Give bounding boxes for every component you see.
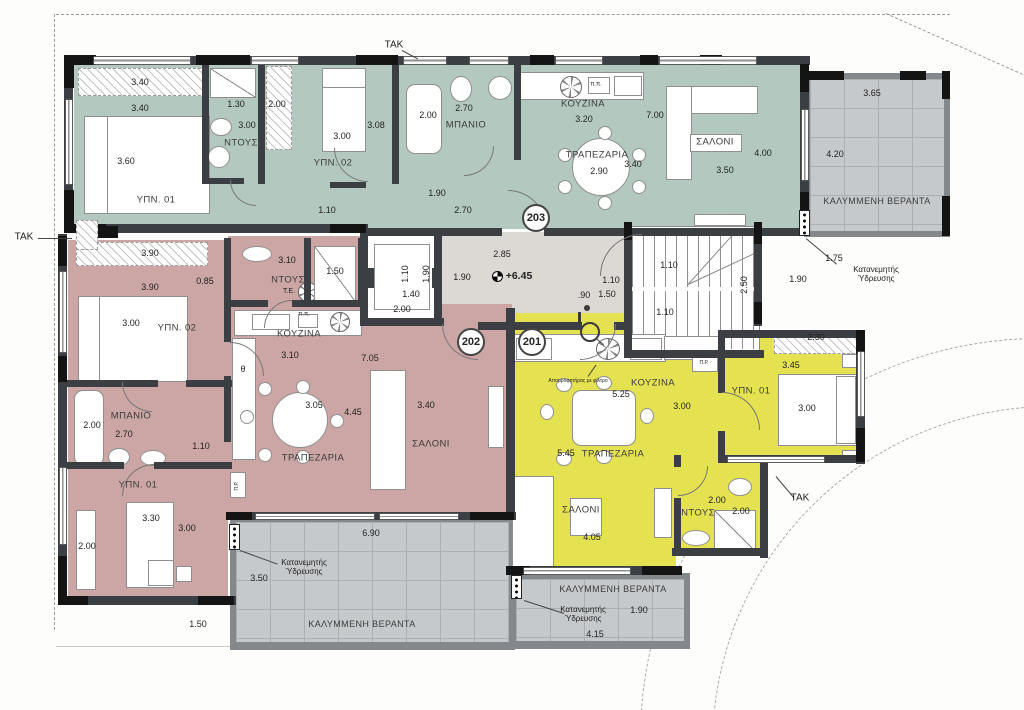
wall-pier xyxy=(196,55,250,65)
dimension-label: 3.30 xyxy=(142,513,160,523)
wall-segment xyxy=(672,548,768,556)
window xyxy=(404,57,446,64)
dimension-label: 3.60 xyxy=(117,156,135,166)
wall-pier xyxy=(64,190,74,224)
cooktop-fan xyxy=(330,312,350,332)
dimension-label: 1.90 xyxy=(421,265,431,283)
dimension-label: 1.50 xyxy=(326,266,344,276)
window xyxy=(660,57,756,64)
wall-pier xyxy=(356,55,398,65)
dimension-label: 3.40 xyxy=(417,400,435,410)
dimension-label: 1.50 xyxy=(189,619,207,629)
dimension-label: θ xyxy=(240,364,245,374)
dimension-label: 3.10 xyxy=(281,350,299,360)
window xyxy=(66,100,72,184)
room-label: ΣΑΛΟΝΙ xyxy=(696,138,734,149)
dimension-label: 2.00 xyxy=(708,495,726,505)
wall-segment xyxy=(674,498,681,556)
dimension-label: 3.00 xyxy=(122,318,140,328)
chair xyxy=(640,408,654,424)
wall-pier xyxy=(640,55,658,65)
wall-segment xyxy=(202,62,209,184)
sofa xyxy=(370,370,406,490)
room-label: ΤΡΑΠΕΖΑΡΙΑ xyxy=(566,151,628,162)
level-marker: +6.45 xyxy=(506,270,533,282)
wall-segment xyxy=(760,458,768,558)
wall-pier xyxy=(856,428,865,462)
dimension-label: 7.05 xyxy=(361,353,379,363)
dimension-label: 6.90 xyxy=(362,528,380,538)
room-label: ΜΠΑΝΙΟ xyxy=(446,121,486,132)
dimension-label: 1.90 xyxy=(428,188,446,198)
pillow xyxy=(78,296,100,382)
room-label: ΣΑΛΟΝΙ xyxy=(412,440,450,451)
room-label: ΝΤΟΥΣ xyxy=(681,509,715,520)
wall-segment xyxy=(258,62,265,184)
dimension-label: 3.40 xyxy=(131,77,149,87)
wall-pier xyxy=(330,224,366,233)
chair xyxy=(240,410,254,424)
dimension-label: 2.90 xyxy=(590,166,608,176)
wall-segment xyxy=(224,238,231,342)
window xyxy=(524,568,630,574)
wall-segment xyxy=(364,228,502,236)
tv-unit xyxy=(694,214,746,226)
dimension-label: 1.10 xyxy=(192,441,210,451)
window xyxy=(94,57,190,64)
dimension-label: 2.70 xyxy=(454,205,472,215)
dimension-label: 3.40 xyxy=(131,103,149,113)
wall-pier xyxy=(754,302,762,324)
dimension-label: 3.20 xyxy=(575,114,593,124)
tak-label-right: ΤΑΚ xyxy=(791,492,810,504)
dimension-label: 0.85 xyxy=(196,276,214,286)
dimension-label: 2.30 xyxy=(807,332,825,342)
chair xyxy=(258,448,272,462)
dimension-label: 2.50 xyxy=(739,276,749,294)
chair xyxy=(632,180,646,194)
water-distributor xyxy=(799,210,810,236)
dimension-label: 3.08 xyxy=(367,120,385,130)
tak-marker xyxy=(76,220,98,250)
wall-segment xyxy=(304,238,311,304)
window xyxy=(802,110,808,180)
dimension-label: 1.50 xyxy=(598,289,616,299)
chair xyxy=(258,382,272,396)
floor-plan-canvas: 203 202 201 ΤΑΚΤΑΚΤΑΚ3.403.401.302.003.0… xyxy=(0,0,1024,710)
veranda-label: ΚΑΛΥΜΜΕΝΗ ΒΕΡΑΝΤΑ xyxy=(308,619,415,629)
dimension-label: 3.10 xyxy=(278,255,296,265)
chair xyxy=(540,404,554,420)
pillow xyxy=(322,68,366,88)
pillow xyxy=(84,116,108,214)
wall-pier xyxy=(64,62,74,88)
tv-unit xyxy=(654,488,672,538)
level-marker-symbol xyxy=(492,271,503,282)
wall-segment xyxy=(330,182,366,188)
pillow xyxy=(836,376,856,444)
tv-unit xyxy=(488,386,504,448)
dimension-label: 1.10 xyxy=(656,307,674,317)
wall-segment xyxy=(392,62,399,184)
sidewalk-line xyxy=(56,646,232,647)
dimension-label: 3.00 xyxy=(178,523,196,533)
dimension-label: 1.10 xyxy=(400,265,410,283)
room-label: ΚΟΥΖΙΝΑ xyxy=(277,330,321,341)
wall-pier xyxy=(530,55,554,65)
window xyxy=(858,352,864,416)
wall-segment xyxy=(434,230,442,326)
tak-label-left: ΤΑΚ xyxy=(15,231,34,243)
dimension-label: 2.70 xyxy=(455,103,473,113)
chair xyxy=(598,196,612,210)
window xyxy=(470,57,508,64)
property-line-corner xyxy=(886,13,1024,79)
dimension-label: 4.15 xyxy=(586,629,604,639)
dimension-label: 4.05 xyxy=(583,532,601,542)
wall-pier xyxy=(856,330,865,354)
dimension-label: 1.10 xyxy=(602,275,620,285)
room-label: ΚΟΥΖΙΝΑ xyxy=(561,100,605,111)
dimension-label: 2.85 xyxy=(493,249,511,259)
room-label: ΥΠΝ. 02 xyxy=(158,324,197,335)
dimension-label: 3.50 xyxy=(716,165,734,175)
wall-segment xyxy=(362,318,444,326)
dimension-label: 3.00 xyxy=(673,401,691,411)
chair xyxy=(330,414,344,428)
dimension-label: 3.90 xyxy=(141,248,159,258)
dimension-label: 1.10 xyxy=(660,260,678,270)
wall-segment xyxy=(718,330,865,338)
water-distributor-note: Κατανεμητής Ύδρευσης xyxy=(560,605,606,623)
wall-pier xyxy=(470,512,514,520)
dimension-label: π.π. xyxy=(590,82,602,89)
water-distributor xyxy=(229,524,240,550)
window xyxy=(256,514,374,519)
room-label: ΥΠΝ. 01 xyxy=(137,196,176,207)
chair xyxy=(558,180,572,194)
window xyxy=(556,57,602,64)
water-distributor-note: Κατανεμητής Ύδρευσης xyxy=(281,558,327,576)
dimension-label: 1.90 xyxy=(630,605,648,615)
wall-segment xyxy=(514,62,521,160)
wall-segment xyxy=(506,308,515,516)
dimension-label: 3.65 xyxy=(863,88,881,98)
wall-pier xyxy=(942,71,950,99)
wall-segment xyxy=(186,380,232,387)
dimension-label: 1.40 xyxy=(402,289,420,299)
wall-pier xyxy=(800,64,809,92)
wall-pier xyxy=(942,196,950,236)
wall-pier xyxy=(754,222,762,244)
chair xyxy=(296,380,310,394)
kitchen-sink xyxy=(614,76,642,96)
dimension-label: 3.90 xyxy=(141,282,159,292)
wall-pier xyxy=(58,556,67,598)
chair xyxy=(598,126,612,140)
dimension-label: 1.90 xyxy=(453,272,471,282)
washbasin xyxy=(242,246,272,262)
wall-pier xyxy=(58,356,67,382)
dimension-label: 2.00 xyxy=(83,420,101,430)
dimension-label: π.π. xyxy=(298,312,310,319)
wall-pier xyxy=(806,71,844,80)
toilet xyxy=(450,76,472,102)
window xyxy=(380,514,458,519)
wall-pier xyxy=(198,596,234,605)
window xyxy=(728,457,824,462)
window xyxy=(60,272,66,352)
water-distributor xyxy=(511,575,522,599)
wall-segment xyxy=(58,462,124,469)
wall-pier xyxy=(58,236,67,266)
dimension-label: 1.30 xyxy=(227,99,245,109)
sofa xyxy=(512,476,554,570)
dimension-label: 2.00 xyxy=(732,506,750,516)
wall-segment xyxy=(292,300,366,307)
dimension-label: 2.00 xyxy=(268,99,286,109)
dimension-label: 3.05 xyxy=(305,400,323,410)
room-label: ΝΤΟΥΣ xyxy=(224,139,258,150)
room-label: ΤΡΑΠΕΖΑΡΙΑ xyxy=(282,454,344,465)
dimension-label: 3.40 xyxy=(624,159,642,169)
cooktop-fan xyxy=(560,76,582,98)
dimension-label: 3.00 xyxy=(238,120,256,130)
wall-pier xyxy=(642,566,682,575)
nightstand xyxy=(176,566,192,582)
dimension-label: 2.00 xyxy=(419,110,437,120)
room-label: ΥΠΝ. 02 xyxy=(314,159,353,170)
room-label: ΤΡΑΠΕΖΑΡΙΑ xyxy=(582,450,644,461)
wall-pier xyxy=(226,512,252,520)
shower-tray xyxy=(714,510,756,552)
sofa xyxy=(666,86,692,180)
toilet xyxy=(210,118,232,136)
dimension-label: Π.Ρ. xyxy=(235,481,241,490)
property-line-left xyxy=(54,14,55,630)
apartment-number-202: 202 xyxy=(457,328,485,356)
veranda-label: ΚΑΛΥΜΜΕΝΗ ΒΕΡΑΝΤΑ xyxy=(823,196,930,206)
water-distributor-note: Κατανεμητής Ύδρευσης xyxy=(853,265,899,283)
dimension-label: 2.70 xyxy=(115,429,133,439)
dimension-label: 3.45 xyxy=(782,360,800,370)
dimension-label: Π.Ρ. xyxy=(699,361,708,367)
wheelchair-icon xyxy=(584,305,590,311)
wall-segment xyxy=(228,300,268,307)
pillow xyxy=(148,560,174,586)
wall-segment xyxy=(358,238,365,304)
dimension-label: 3.50 xyxy=(250,573,268,583)
wall-segment xyxy=(718,431,725,457)
veranda-wall xyxy=(230,642,515,650)
veranda-label: ΚΑΛΥΜΜΕΝΗ ΒΕΡΑΝΤΑ xyxy=(559,584,666,594)
toilet xyxy=(728,478,752,496)
apartment-number-203: 203 xyxy=(522,204,550,232)
window xyxy=(60,468,66,544)
dimension-label: 1.90 xyxy=(789,274,807,284)
dimension-label: 1.75 xyxy=(825,253,843,263)
dimension-label: 4.45 xyxy=(344,407,362,417)
wall-segment xyxy=(154,462,232,469)
veranda-wall xyxy=(510,641,690,649)
dimension-label: 4.20 xyxy=(826,149,844,159)
room-label: ΝΤΟΥΣ xyxy=(271,276,305,287)
dimension-label: 3.00 xyxy=(798,403,816,413)
tak-label-top: ΤΑΚ xyxy=(385,39,404,51)
dimension-label: 5.45 xyxy=(557,448,575,458)
shower-tray xyxy=(210,68,256,98)
dimension-label: .90 xyxy=(578,290,591,300)
dimension-label: Τ.Ε. xyxy=(283,288,295,296)
wheelchair-icon xyxy=(578,312,581,324)
room-label: ΣΑΛΟΝΙ xyxy=(562,506,600,517)
wall-segment xyxy=(718,333,725,393)
dimension-label: 5.25 xyxy=(612,389,630,399)
dimension-label: 2.00 xyxy=(393,304,411,314)
window xyxy=(252,57,298,64)
dimension-label: 7.00 xyxy=(646,110,664,120)
wall-pier xyxy=(58,596,88,605)
property-line-top xyxy=(56,14,950,15)
room-label: ΚΟΥΖΙΝΑ xyxy=(631,379,675,390)
dimension-label: 1.10 xyxy=(318,205,336,215)
dimension-label: 3.00 xyxy=(333,131,351,141)
leader-line xyxy=(38,238,72,239)
wall-segment xyxy=(624,350,764,358)
dimension-label: 2.00 xyxy=(78,541,96,551)
room-label: ΥΠΝ. 01 xyxy=(119,481,158,492)
room-label: ΜΠΑΝΙΟ xyxy=(111,412,151,423)
washbasin xyxy=(682,530,710,546)
dimension-label: Απορροφητήρας με φίλτρο xyxy=(548,379,607,385)
apartment-number-201: 201 xyxy=(518,328,546,356)
dimension-label: 4.00 xyxy=(754,148,772,158)
wall-segment xyxy=(544,228,810,236)
room-label: ΥΠΝ. 01 xyxy=(732,387,771,398)
washbasin xyxy=(488,76,512,100)
wall-pier xyxy=(900,71,926,80)
